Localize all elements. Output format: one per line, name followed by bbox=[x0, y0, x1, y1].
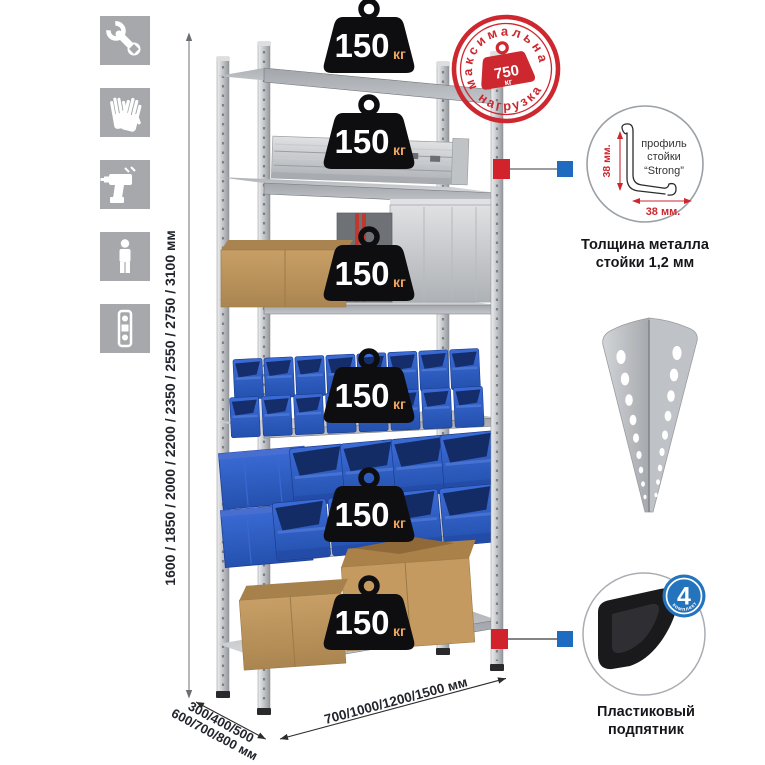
profile-name-2: стойки bbox=[647, 151, 681, 163]
shelf-load-badge: 150 кг bbox=[324, 1, 415, 73]
drill-icon bbox=[100, 160, 150, 209]
gloves-icon bbox=[100, 88, 150, 137]
shelf-load-unit: кг bbox=[393, 274, 406, 290]
shelf-load-value: 150 bbox=[334, 123, 389, 160]
shelf-load-unit: кг bbox=[393, 515, 406, 531]
foot-caption-2: подпятник bbox=[608, 722, 685, 738]
profile-dim-vertical: 38 мм. bbox=[601, 144, 613, 177]
width-label: 700/1000/1200/1500 мм bbox=[323, 674, 469, 727]
height-dimension: 1600 / 1850 / 2000 / 2200 / 2350 / 2550 … bbox=[162, 33, 192, 699]
shelf-load-unit: кг bbox=[393, 142, 406, 158]
shelf-load-value: 150 bbox=[334, 27, 389, 64]
rack-post bbox=[490, 52, 504, 671]
callout-blue-marker bbox=[557, 161, 573, 177]
callout-red-marker bbox=[493, 159, 510, 179]
foot-caption-1: Пластиковый bbox=[597, 704, 695, 720]
profile-caption-2: стойки 1,2 мм bbox=[596, 255, 695, 271]
callout-blue-marker bbox=[557, 631, 573, 647]
shelf-load-unit: кг bbox=[393, 396, 406, 412]
shelf-load-unit: кг bbox=[393, 623, 406, 639]
max-load-stamp: 750 кг максимальная нагрузка bbox=[446, 9, 566, 129]
shelf-load-unit: кг bbox=[393, 46, 406, 62]
wrench-icon bbox=[100, 16, 150, 65]
shelf-load-value: 150 bbox=[334, 377, 389, 414]
profile-caption-1: Толщина металла bbox=[581, 237, 710, 253]
callout-profile bbox=[493, 159, 573, 179]
shelf-load-badge: 150 кг bbox=[324, 97, 415, 169]
shelf-load-value: 150 bbox=[334, 604, 389, 641]
callout-red-marker bbox=[491, 629, 508, 649]
shelf-load-value: 150 bbox=[334, 255, 389, 292]
person-icon bbox=[100, 232, 150, 281]
height-dimension-label: 1600 / 1850 / 2000 / 2200 / 2350 / 2550 … bbox=[162, 230, 178, 585]
profile-name-1: профиль bbox=[641, 138, 687, 150]
profile-name-3: “Strong” bbox=[644, 165, 684, 177]
shelf-load-value: 150 bbox=[334, 496, 389, 533]
profile-dim-horizontal: 38 мм. bbox=[646, 206, 681, 218]
foot-detail: 4 в комплекте Пластиковый подпятник bbox=[583, 573, 706, 738]
product-infographic: 1600 / 1850 / 2000 / 2200 / 2350 / 2550 … bbox=[0, 0, 765, 765]
width-dimension: 700/1000/1200/1500 мм bbox=[279, 674, 507, 742]
count-badge: 4 в комплекте bbox=[663, 575, 706, 618]
depth-dimension: 300/400/500 600/700/800 мм bbox=[169, 693, 267, 763]
level-icon bbox=[100, 304, 150, 353]
post-corner-graphic bbox=[603, 318, 698, 512]
callout-foot bbox=[491, 629, 573, 649]
post-profile-detail: 38 мм. 38 мм. профиль стойки “Strong” То… bbox=[581, 106, 710, 271]
feature-icons bbox=[100, 16, 150, 353]
infographic-canvas: 1600 / 1850 / 2000 / 2200 / 2350 / 2550 … bbox=[0, 0, 765, 765]
rack-post bbox=[216, 57, 230, 698]
